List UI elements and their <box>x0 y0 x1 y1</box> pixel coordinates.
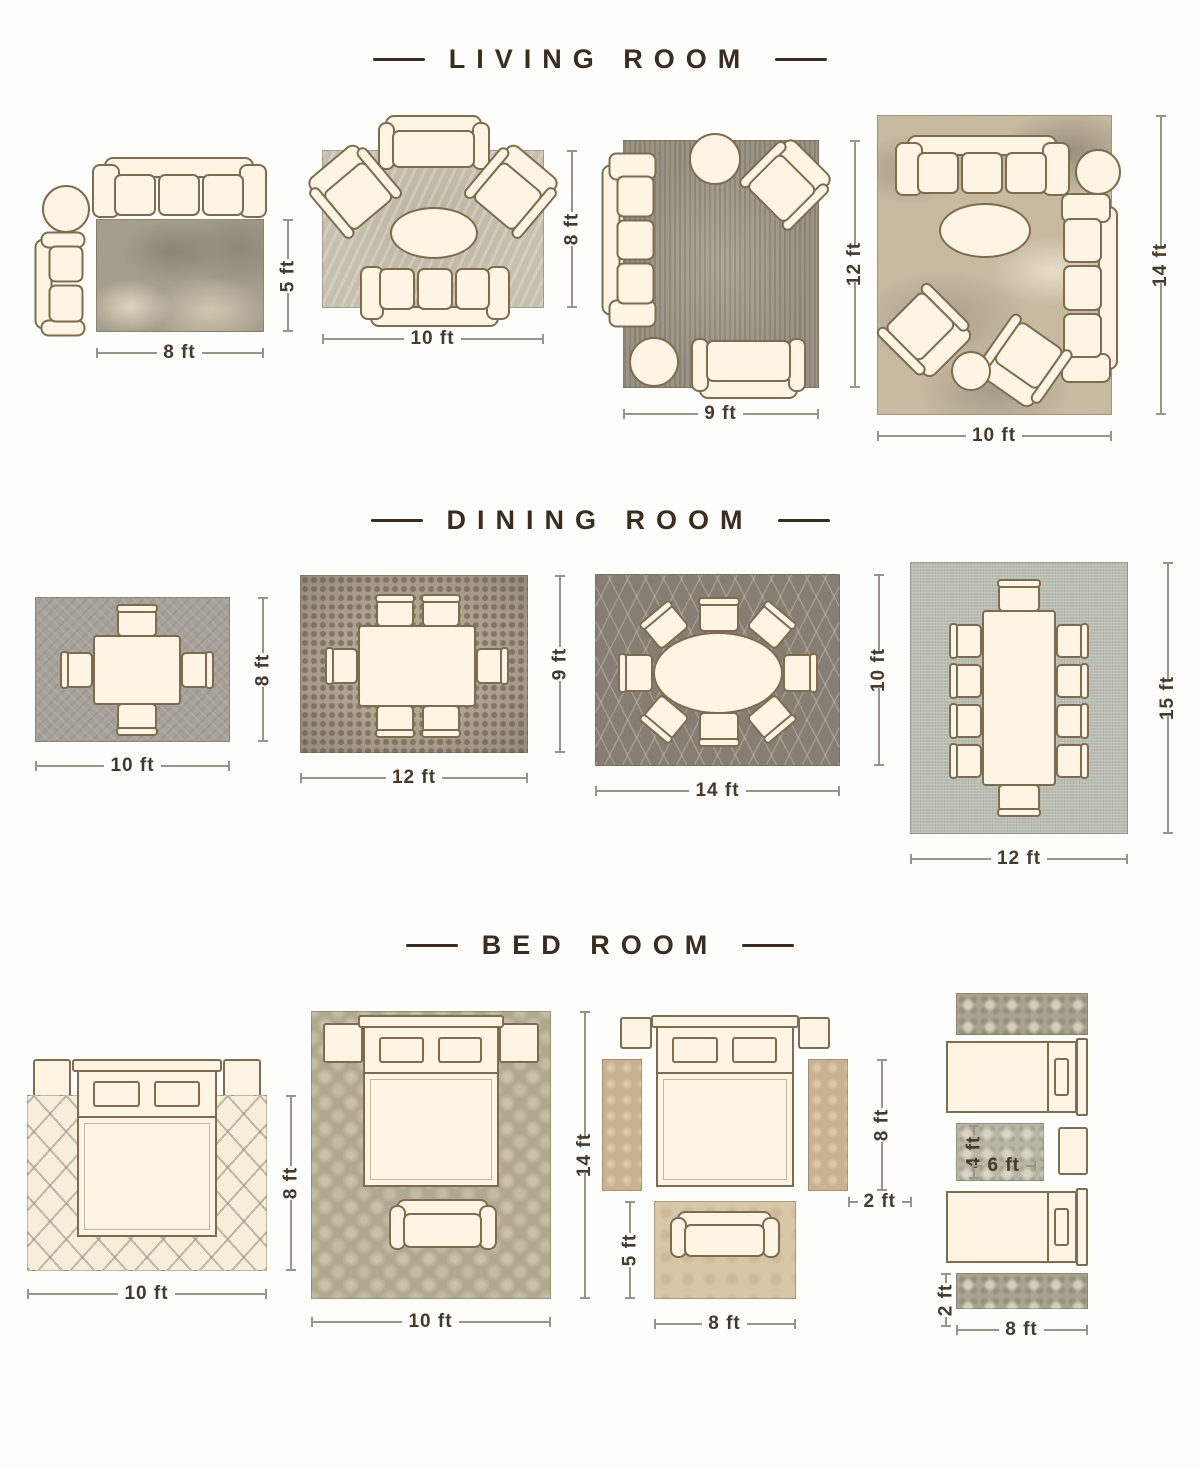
bed-body <box>77 1116 217 1237</box>
dining-room-row: 8 ft 10 ft 9 ft 12 ft <box>0 562 1200 872</box>
dining-chair <box>65 652 93 688</box>
dimension-line <box>559 681 561 753</box>
dimension-line <box>262 687 264 743</box>
chair-back <box>809 653 818 693</box>
dimension-line <box>743 413 819 415</box>
dimension-label: 15 ft <box>1157 676 1179 720</box>
pillow <box>1054 1208 1069 1245</box>
height-dimension: 8 ft <box>556 150 589 308</box>
seat-cushion <box>961 152 1003 194</box>
title-dash <box>778 519 830 522</box>
bed-room-layout-4: 4 ft 6 ft 2 ft 8 ft <box>924 991 1174 1336</box>
chair-back <box>421 594 461 603</box>
runner-rug <box>956 993 1088 1035</box>
dimension-line <box>459 1321 551 1323</box>
pillows <box>363 1026 499 1074</box>
dining-chair <box>699 602 739 632</box>
dimension-line <box>878 687 880 766</box>
chair-back <box>997 808 1041 817</box>
dining-chair <box>1056 744 1084 778</box>
nightstand <box>33 1059 71 1097</box>
dimension-line <box>1022 435 1111 437</box>
dining-chair <box>476 648 504 684</box>
height-dimension: 12 ft <box>833 140 877 388</box>
side-table <box>1075 149 1121 195</box>
dimension-line <box>629 1201 631 1233</box>
runner-width-dimension: 8 ft <box>956 1319 1088 1341</box>
pillow <box>379 1037 424 1063</box>
seat-cushion <box>705 340 790 382</box>
dimension-line <box>878 574 880 653</box>
dining-table <box>982 610 1056 786</box>
chair-back <box>500 647 509 685</box>
dining-chair <box>117 609 157 637</box>
width-dimension: 10 ft <box>311 1311 551 1333</box>
bed <box>77 1059 217 1237</box>
dimension-label: 5 ft <box>619 1234 641 1267</box>
dimension-line <box>854 140 856 247</box>
chair-back <box>325 647 334 685</box>
seat-cushion <box>917 152 959 194</box>
dimension-line <box>973 1125 975 1135</box>
chair-back <box>116 727 158 736</box>
section-title-text: LIVING ROOM <box>449 44 752 75</box>
chaise <box>34 232 86 337</box>
sofa <box>360 265 510 327</box>
dimension-line <box>848 1201 858 1203</box>
runner-rug <box>808 1059 848 1191</box>
dimension-line <box>287 293 289 333</box>
seat-cushion <box>417 268 453 310</box>
rug <box>96 219 264 332</box>
dimension-line <box>262 597 264 653</box>
pillows <box>1047 1041 1077 1113</box>
bed-room-layout-1: 8 ft 10 ft <box>27 1059 287 1309</box>
bed-body <box>946 1041 1050 1113</box>
dimension-line <box>571 246 573 308</box>
seat-cushion <box>616 175 654 217</box>
chair-back <box>1080 743 1089 779</box>
dining-room-layout-1: 8 ft 10 ft <box>35 597 270 787</box>
seat-cushion <box>1005 152 1047 194</box>
dining-chair <box>998 784 1040 812</box>
title-dash <box>742 944 794 947</box>
height-dimension: 8 ft <box>247 597 280 742</box>
sofa <box>92 157 267 219</box>
width-dimension: 10 ft <box>877 425 1112 447</box>
seat-cushion <box>114 174 156 216</box>
twin-bed <box>946 1191 1088 1263</box>
dining-chair <box>954 624 982 658</box>
dimension-label: 12 ft <box>997 848 1041 870</box>
dimension-line <box>1160 282 1162 415</box>
width-dimension: 10 ft <box>322 328 544 350</box>
chair-back <box>949 743 958 779</box>
dimension-label: 8 ft <box>561 213 583 246</box>
coffee-table <box>390 207 478 259</box>
dimension-line <box>559 575 561 647</box>
bench <box>670 1211 780 1259</box>
seat-cushion <box>379 268 415 310</box>
seat-cushion <box>684 1224 765 1257</box>
dimension-line <box>881 1059 883 1108</box>
title-dash <box>371 519 423 522</box>
dimension-line <box>877 435 966 437</box>
dimension-label: 9 ft <box>704 403 737 425</box>
pillow <box>93 1081 139 1107</box>
pillows <box>1047 1191 1077 1263</box>
dimension-line <box>654 1323 703 1325</box>
dining-chair <box>954 704 982 738</box>
pillow <box>732 1037 778 1063</box>
dimension-label: 2 ft <box>864 1191 897 1213</box>
dimension-label: 10 ft <box>868 648 890 692</box>
dimension-line <box>442 777 528 779</box>
chair-back <box>698 597 740 606</box>
dimension-line <box>1167 562 1169 681</box>
dining-chair <box>783 654 813 692</box>
headboard <box>1076 1188 1088 1266</box>
sofa-seats <box>684 1224 765 1257</box>
dimension-line <box>35 765 104 767</box>
bed-body <box>656 1072 794 1187</box>
width-dimension: 14 ft <box>595 780 840 802</box>
seat-cushion <box>1062 265 1101 311</box>
twin-bed <box>946 1041 1088 1113</box>
bed-body <box>363 1072 499 1187</box>
chair-back <box>116 604 158 613</box>
living-room-layout-1: 5 ft 8 ft <box>34 137 284 372</box>
sofa <box>895 135 1070 197</box>
width-dimension: 10 ft <box>35 755 230 777</box>
sofa <box>601 153 657 328</box>
title-dash <box>373 58 425 61</box>
width-dimension: 12 ft <box>910 848 1128 870</box>
dimension-line <box>584 1172 586 1299</box>
chair-back <box>949 623 958 659</box>
dimension-line <box>1044 1329 1088 1331</box>
height-dimension: 10 ft <box>857 574 901 766</box>
dimension-line <box>881 1142 883 1191</box>
dimension-label: 10 ft <box>410 328 454 350</box>
dining-chair <box>954 664 982 698</box>
sofa-seats <box>403 1213 483 1248</box>
height-dimension: 5 ft <box>272 219 305 332</box>
pillow <box>438 1037 483 1063</box>
chair-back <box>618 653 627 693</box>
loveseat <box>378 115 490 171</box>
chair-back <box>421 729 461 738</box>
dining-table <box>653 632 783 714</box>
height-dimension: 9 ft <box>544 575 577 753</box>
dimension-label: 8 ft <box>163 342 196 364</box>
nightstand <box>620 1017 652 1049</box>
dining-chair <box>376 599 414 627</box>
living-room-section: LIVING ROOM 5 ft 8 ft <box>0 44 1200 443</box>
dining-chair <box>623 654 653 692</box>
seat-cushion <box>392 130 475 168</box>
seat-cushion <box>202 174 244 216</box>
between-rug-width-dimension: 6 ft <box>972 1155 1040 1177</box>
dimension-line <box>290 1200 292 1271</box>
nightstand <box>323 1023 363 1063</box>
dining-table <box>358 625 476 707</box>
chair-back <box>1080 663 1089 699</box>
dining-chair <box>954 744 982 778</box>
dimension-label: 12 ft <box>392 767 436 789</box>
headboard <box>1076 1038 1088 1116</box>
dimension-line <box>972 1165 982 1167</box>
seat-cushion <box>48 245 83 283</box>
bed-rug-height-dimension: 8 ft <box>866 1059 899 1191</box>
seat-cushion <box>403 1213 483 1248</box>
width-dimension: 9 ft <box>623 403 819 425</box>
dining-chair <box>1056 704 1084 738</box>
dining-chair <box>330 648 358 684</box>
seat-cushion <box>616 263 654 305</box>
dimension-label: 10 ft <box>408 1311 452 1333</box>
bench <box>389 1199 497 1251</box>
dimension-label: 8 ft <box>252 653 274 686</box>
rug-size-guide: LIVING ROOM 5 ft 8 ft <box>0 0 1200 1467</box>
dimension-line <box>175 1293 267 1295</box>
bed-room-layout-3: 8 ft 2 ft 5 ft 8 ft <box>600 1015 900 1335</box>
dimension-line <box>161 765 230 767</box>
dimension-label: 10 ft <box>110 755 154 777</box>
width-dimension: 10 ft <box>27 1283 267 1305</box>
dining-chair <box>117 703 157 731</box>
dining-room-layout-4: 15 ft 12 ft <box>910 562 1165 872</box>
dimension-line <box>629 1267 631 1299</box>
loveseat <box>691 337 806 399</box>
dimension-label: 10 ft <box>972 425 1016 447</box>
bed <box>656 1015 794 1187</box>
chair-back <box>997 579 1041 588</box>
height-dimension: 8 ft <box>275 1095 308 1271</box>
chair-back <box>375 729 415 738</box>
chair-back <box>949 663 958 699</box>
sofa-seats <box>392 130 475 168</box>
dimension-line <box>746 790 840 792</box>
dimension-label: 8 ft <box>1005 1319 1038 1341</box>
chair-back <box>698 738 740 747</box>
dining-chair <box>1056 624 1084 658</box>
seat-cushion <box>1062 218 1101 264</box>
sofa-seats <box>114 174 244 216</box>
dimension-line <box>945 1273 947 1283</box>
section-title-text: BED ROOM <box>482 930 719 961</box>
section-title-dining-room: DINING ROOM <box>0 505 1200 536</box>
dimension-line <box>854 281 856 388</box>
runner-rug <box>602 1059 642 1191</box>
sofa-seats <box>917 152 1047 194</box>
title-dash <box>775 58 827 61</box>
dimension-label: 8 ft <box>708 1313 741 1335</box>
living-room-row: 5 ft 8 ft <box>0 103 1200 443</box>
dimension-label: 9 ft <box>549 648 571 681</box>
chair-back <box>949 703 958 739</box>
dimension-line <box>1160 115 1162 248</box>
dimension-line <box>945 1317 947 1327</box>
sofa-seats <box>48 245 83 323</box>
dimension-line <box>595 790 689 792</box>
section-title-bed-room: BED ROOM <box>0 930 1200 961</box>
side-table <box>951 351 991 391</box>
height-dimension: 14 ft <box>1139 115 1183 415</box>
side-table <box>629 337 679 387</box>
dimension-label: 14 ft <box>695 780 739 802</box>
dimension-label: 2 ft <box>935 1284 957 1317</box>
chair-back <box>60 651 69 689</box>
dimension-line <box>956 1329 1000 1331</box>
bed <box>363 1015 499 1187</box>
dining-chair <box>998 584 1040 612</box>
bed-body <box>946 1191 1050 1263</box>
dimension-line <box>623 413 699 415</box>
dimension-label: 12 ft <box>844 242 866 286</box>
dimension-line <box>96 352 158 354</box>
pillow <box>154 1081 200 1107</box>
dimension-line <box>584 1011 586 1138</box>
pillow <box>1054 1058 1069 1095</box>
nightstand <box>499 1023 539 1063</box>
chair-back <box>205 651 214 689</box>
sofa-seats <box>1062 218 1101 359</box>
dining-room-layout-3: 10 ft 14 ft <box>595 574 880 809</box>
dimension-label: 10 ft <box>124 1283 168 1305</box>
bed-room-layout-2: 14 ft 10 ft <box>311 1007 576 1332</box>
dining-room-layout-2: 9 ft 12 ft <box>300 575 565 800</box>
dining-chair <box>422 705 460 733</box>
dining-chair <box>181 652 209 688</box>
living-room-layout-2: 8 ft 10 ft <box>310 115 575 370</box>
nightstand <box>1058 1127 1088 1175</box>
seat-cushion <box>616 219 654 261</box>
width-dimension: 8 ft <box>96 342 264 364</box>
chair-back <box>1080 703 1089 739</box>
dimension-line <box>1167 715 1169 834</box>
pillows <box>77 1070 217 1118</box>
dimension-line <box>461 338 544 340</box>
height-dimension: 15 ft <box>1146 562 1190 834</box>
dimension-label: 6 ft <box>988 1155 1021 1177</box>
chair-back <box>375 594 415 603</box>
sofa-seats <box>705 340 790 382</box>
dimension-line <box>300 777 386 779</box>
runner-width-dimension: 2 ft <box>848 1191 900 1213</box>
dimension-line <box>322 338 405 340</box>
dimension-line <box>1026 1165 1036 1167</box>
bed-room-section: BED ROOM 8 ft 10 ft <box>0 930 1200 1336</box>
width-dimension: 12 ft <box>300 767 528 789</box>
dimension-line <box>747 1323 796 1325</box>
pillows <box>656 1026 794 1074</box>
side-table <box>689 133 741 185</box>
living-room-layout-4: 14 ft 10 ft <box>877 103 1167 443</box>
nightstand <box>223 1059 261 1097</box>
dimension-label: 8 ft <box>280 1167 302 1200</box>
dimension-line <box>1047 858 1128 860</box>
dimension-label: 5 ft <box>277 259 299 292</box>
seat-cushion <box>158 174 200 216</box>
title-dash <box>406 944 458 947</box>
foot-rug-width-dimension: 8 ft <box>654 1313 796 1335</box>
dining-chair <box>422 599 460 627</box>
dimension-line <box>311 1321 403 1323</box>
runner-height-dimension: 2 ft <box>930 1273 963 1309</box>
foot-rug-height-dimension: 5 ft <box>614 1201 647 1299</box>
dimension-line <box>202 352 264 354</box>
living-room-layout-3: 12 ft 9 ft <box>601 125 851 425</box>
dimension-label: 8 ft <box>871 1109 893 1142</box>
seat-cushion <box>454 268 490 310</box>
dimension-line <box>571 150 573 212</box>
dining-chair <box>1056 664 1084 698</box>
dimension-line <box>902 1201 912 1203</box>
dining-chair <box>699 712 739 742</box>
pillow <box>672 1037 718 1063</box>
dimension-line <box>290 1095 292 1166</box>
seat-cushion <box>48 285 83 323</box>
sofa-seats <box>616 175 654 305</box>
runner-rug <box>956 1273 1088 1309</box>
dimension-line <box>910 858 991 860</box>
nightstand <box>798 1017 830 1049</box>
section-title-living-room: LIVING ROOM <box>0 44 1200 75</box>
section-title-text: DINING ROOM <box>447 505 754 536</box>
dining-table <box>93 635 181 705</box>
coffee-table <box>939 203 1031 258</box>
dining-chair <box>376 705 414 733</box>
dimension-label: 14 ft <box>574 1133 596 1177</box>
dimension-line <box>287 219 289 259</box>
dimension-line <box>27 1293 119 1295</box>
side-table <box>42 185 90 233</box>
sofa-seats <box>379 268 490 310</box>
dining-room-section: DINING ROOM 8 ft 10 ft <box>0 505 1200 872</box>
chair-back <box>1080 623 1089 659</box>
dimension-label: 14 ft <box>1150 243 1172 287</box>
bed-room-row: 8 ft 10 ft <box>0 991 1200 1336</box>
